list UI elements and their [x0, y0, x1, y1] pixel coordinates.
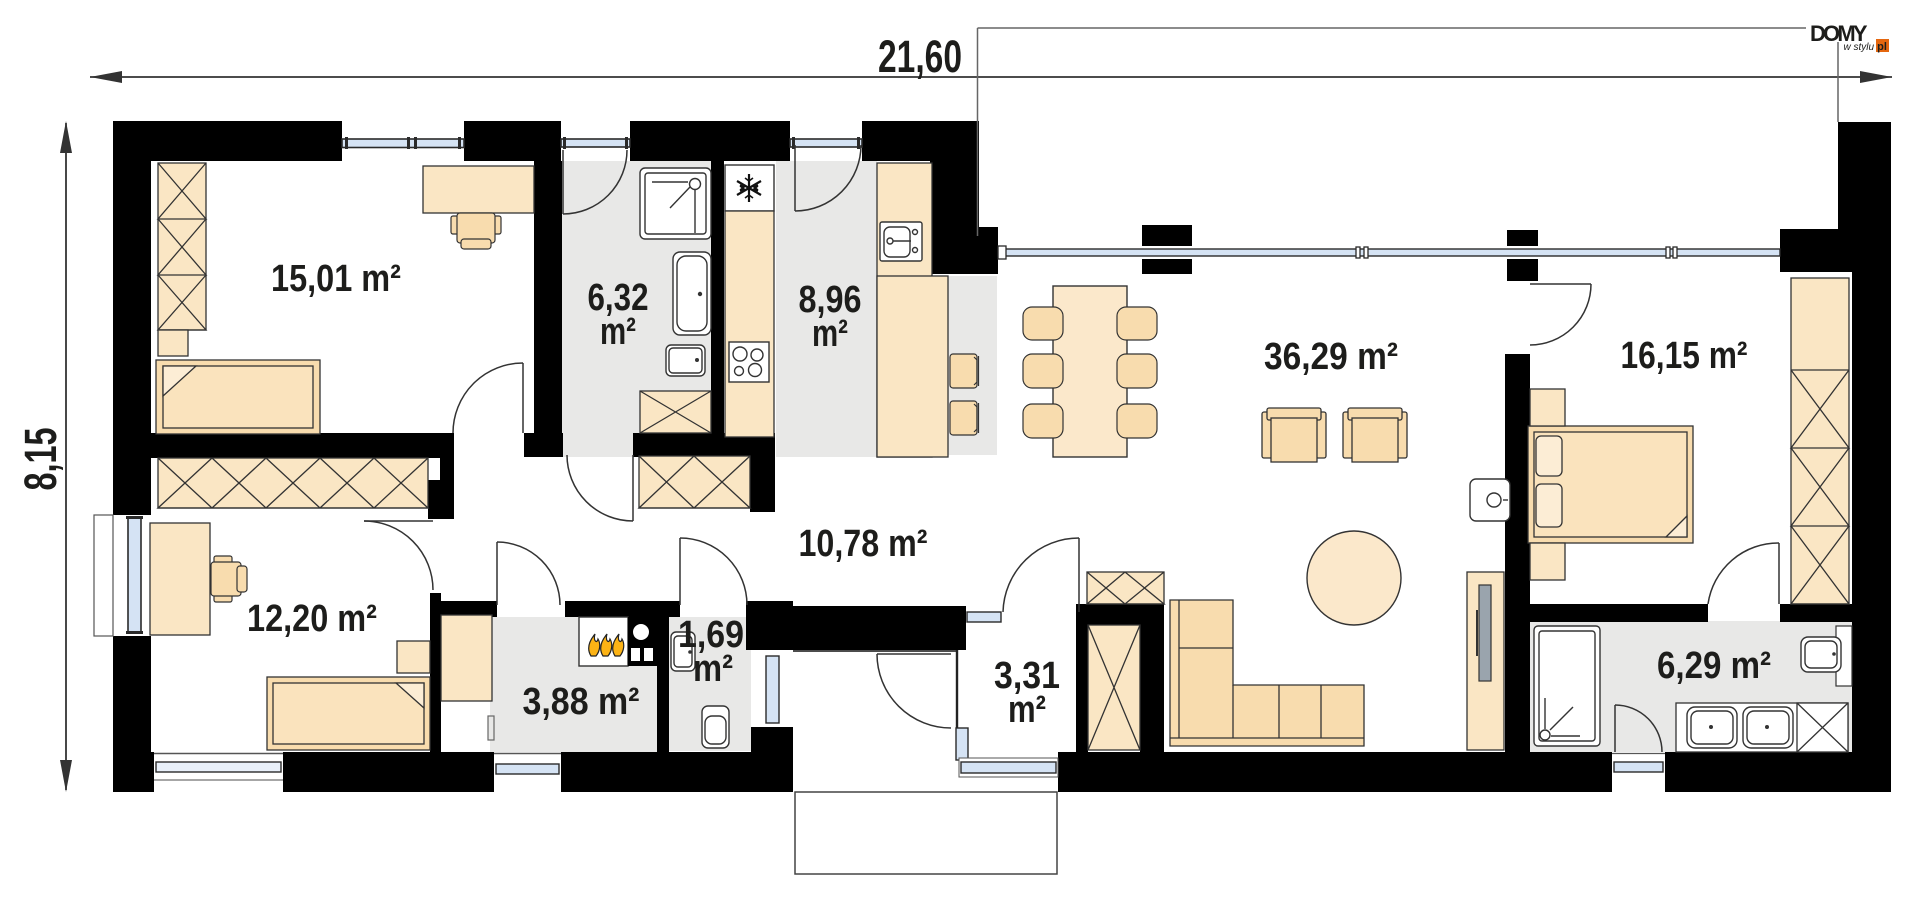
svg-text:w stylu: w stylu — [1843, 42, 1874, 53]
svg-text:6,29 m²: 6,29 m² — [1657, 645, 1771, 687]
svg-text:15,01 m²: 15,01 m² — [271, 258, 401, 300]
svg-text:16,15 m²: 16,15 m² — [1621, 335, 1748, 377]
svg-text:36,29 m²: 36,29 m² — [1264, 336, 1398, 378]
svg-text:10,78 m²: 10,78 m² — [799, 523, 928, 565]
svg-text:12,20 m²: 12,20 m² — [247, 598, 377, 640]
svg-text:m²: m² — [1008, 689, 1046, 731]
svg-text:8,15: 8,15 — [15, 428, 66, 491]
svg-text:m²: m² — [693, 648, 733, 690]
svg-text:m²: m² — [600, 311, 636, 353]
svg-text:pl: pl — [1877, 41, 1887, 53]
svg-text:21,60: 21,60 — [878, 31, 962, 82]
svg-text:m²: m² — [812, 313, 848, 355]
svg-text:3,88 m²: 3,88 m² — [523, 681, 640, 723]
